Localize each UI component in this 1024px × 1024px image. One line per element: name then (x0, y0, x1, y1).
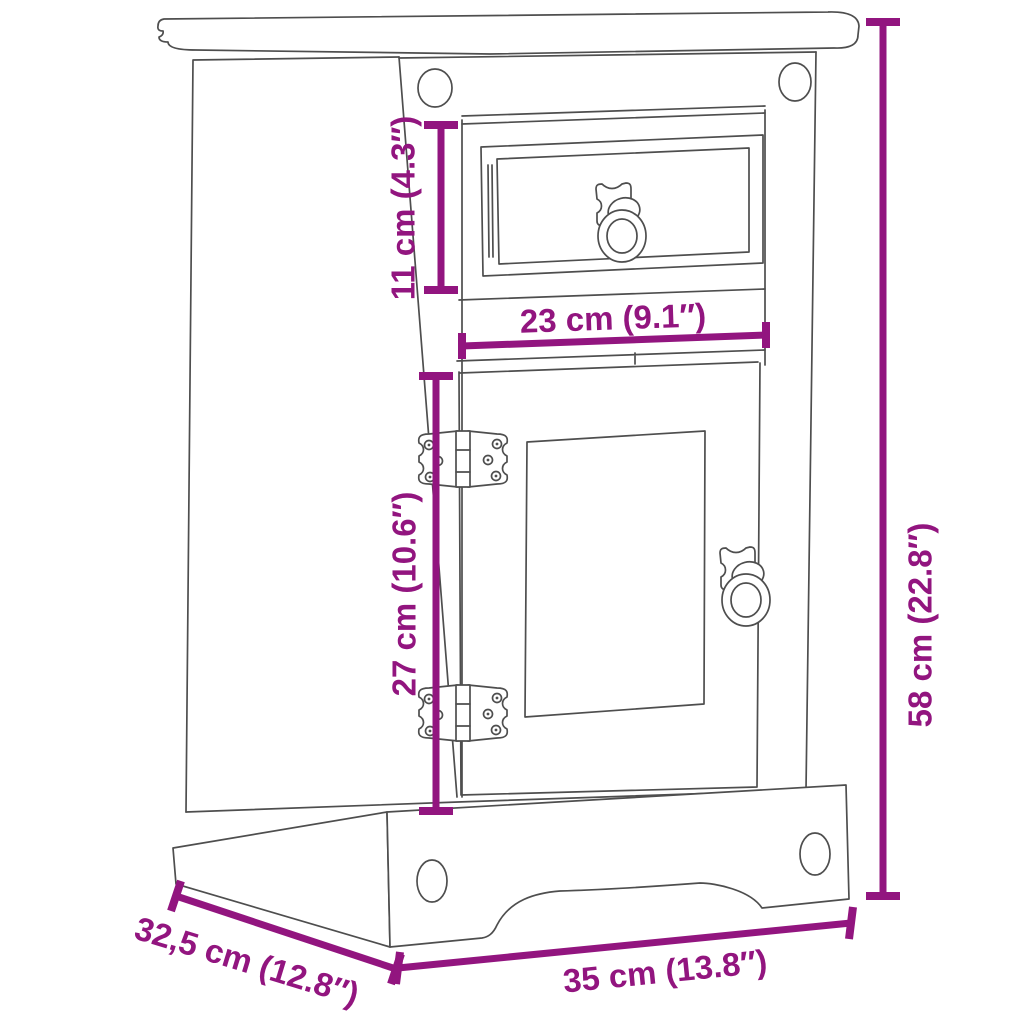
door-hinge-bottom (419, 685, 508, 741)
plinth-side-face (173, 812, 390, 947)
plug-top-right (779, 63, 811, 101)
dimension-overall-height: 58 cm (22.8″) (866, 22, 939, 896)
dimension-drawer-height: 11 cm (4.3″) (385, 116, 459, 301)
furniture-dimension-diagram: 11 cm (4.3″) 23 cm (9.1″) 27 cm (10.6″) … (0, 0, 1024, 1024)
dimension-drawer-height-label: 11 cm (4.3″) (385, 116, 422, 301)
rail-above-drawer (462, 106, 765, 124)
plug-plinth-left (417, 860, 447, 902)
plinth-front-face (387, 785, 849, 947)
side-panel (186, 57, 399, 812)
plug-plinth-right (800, 833, 830, 875)
door-ring-pull-handle (720, 547, 770, 626)
cabinet-drawing (158, 12, 859, 947)
dimension-drawer-width: 23 cm (9.1″) (462, 296, 766, 359)
door-inner-panel (525, 431, 705, 717)
front-right-edge (806, 52, 816, 790)
dimension-overall-height-label: 58 cm (22.8″) (902, 523, 939, 728)
cabinet-top-panel (158, 12, 859, 54)
door-hinge-top (419, 431, 508, 487)
plug-top-left (418, 69, 452, 107)
dimension-door-height-label: 27 cm (10.6″) (386, 492, 423, 697)
dimension-drawer-width-label: 23 cm (9.1″) (519, 296, 707, 339)
diagram-stage: 11 cm (4.3″) 23 cm (9.1″) 27 cm (10.6″) … (0, 0, 1024, 1024)
